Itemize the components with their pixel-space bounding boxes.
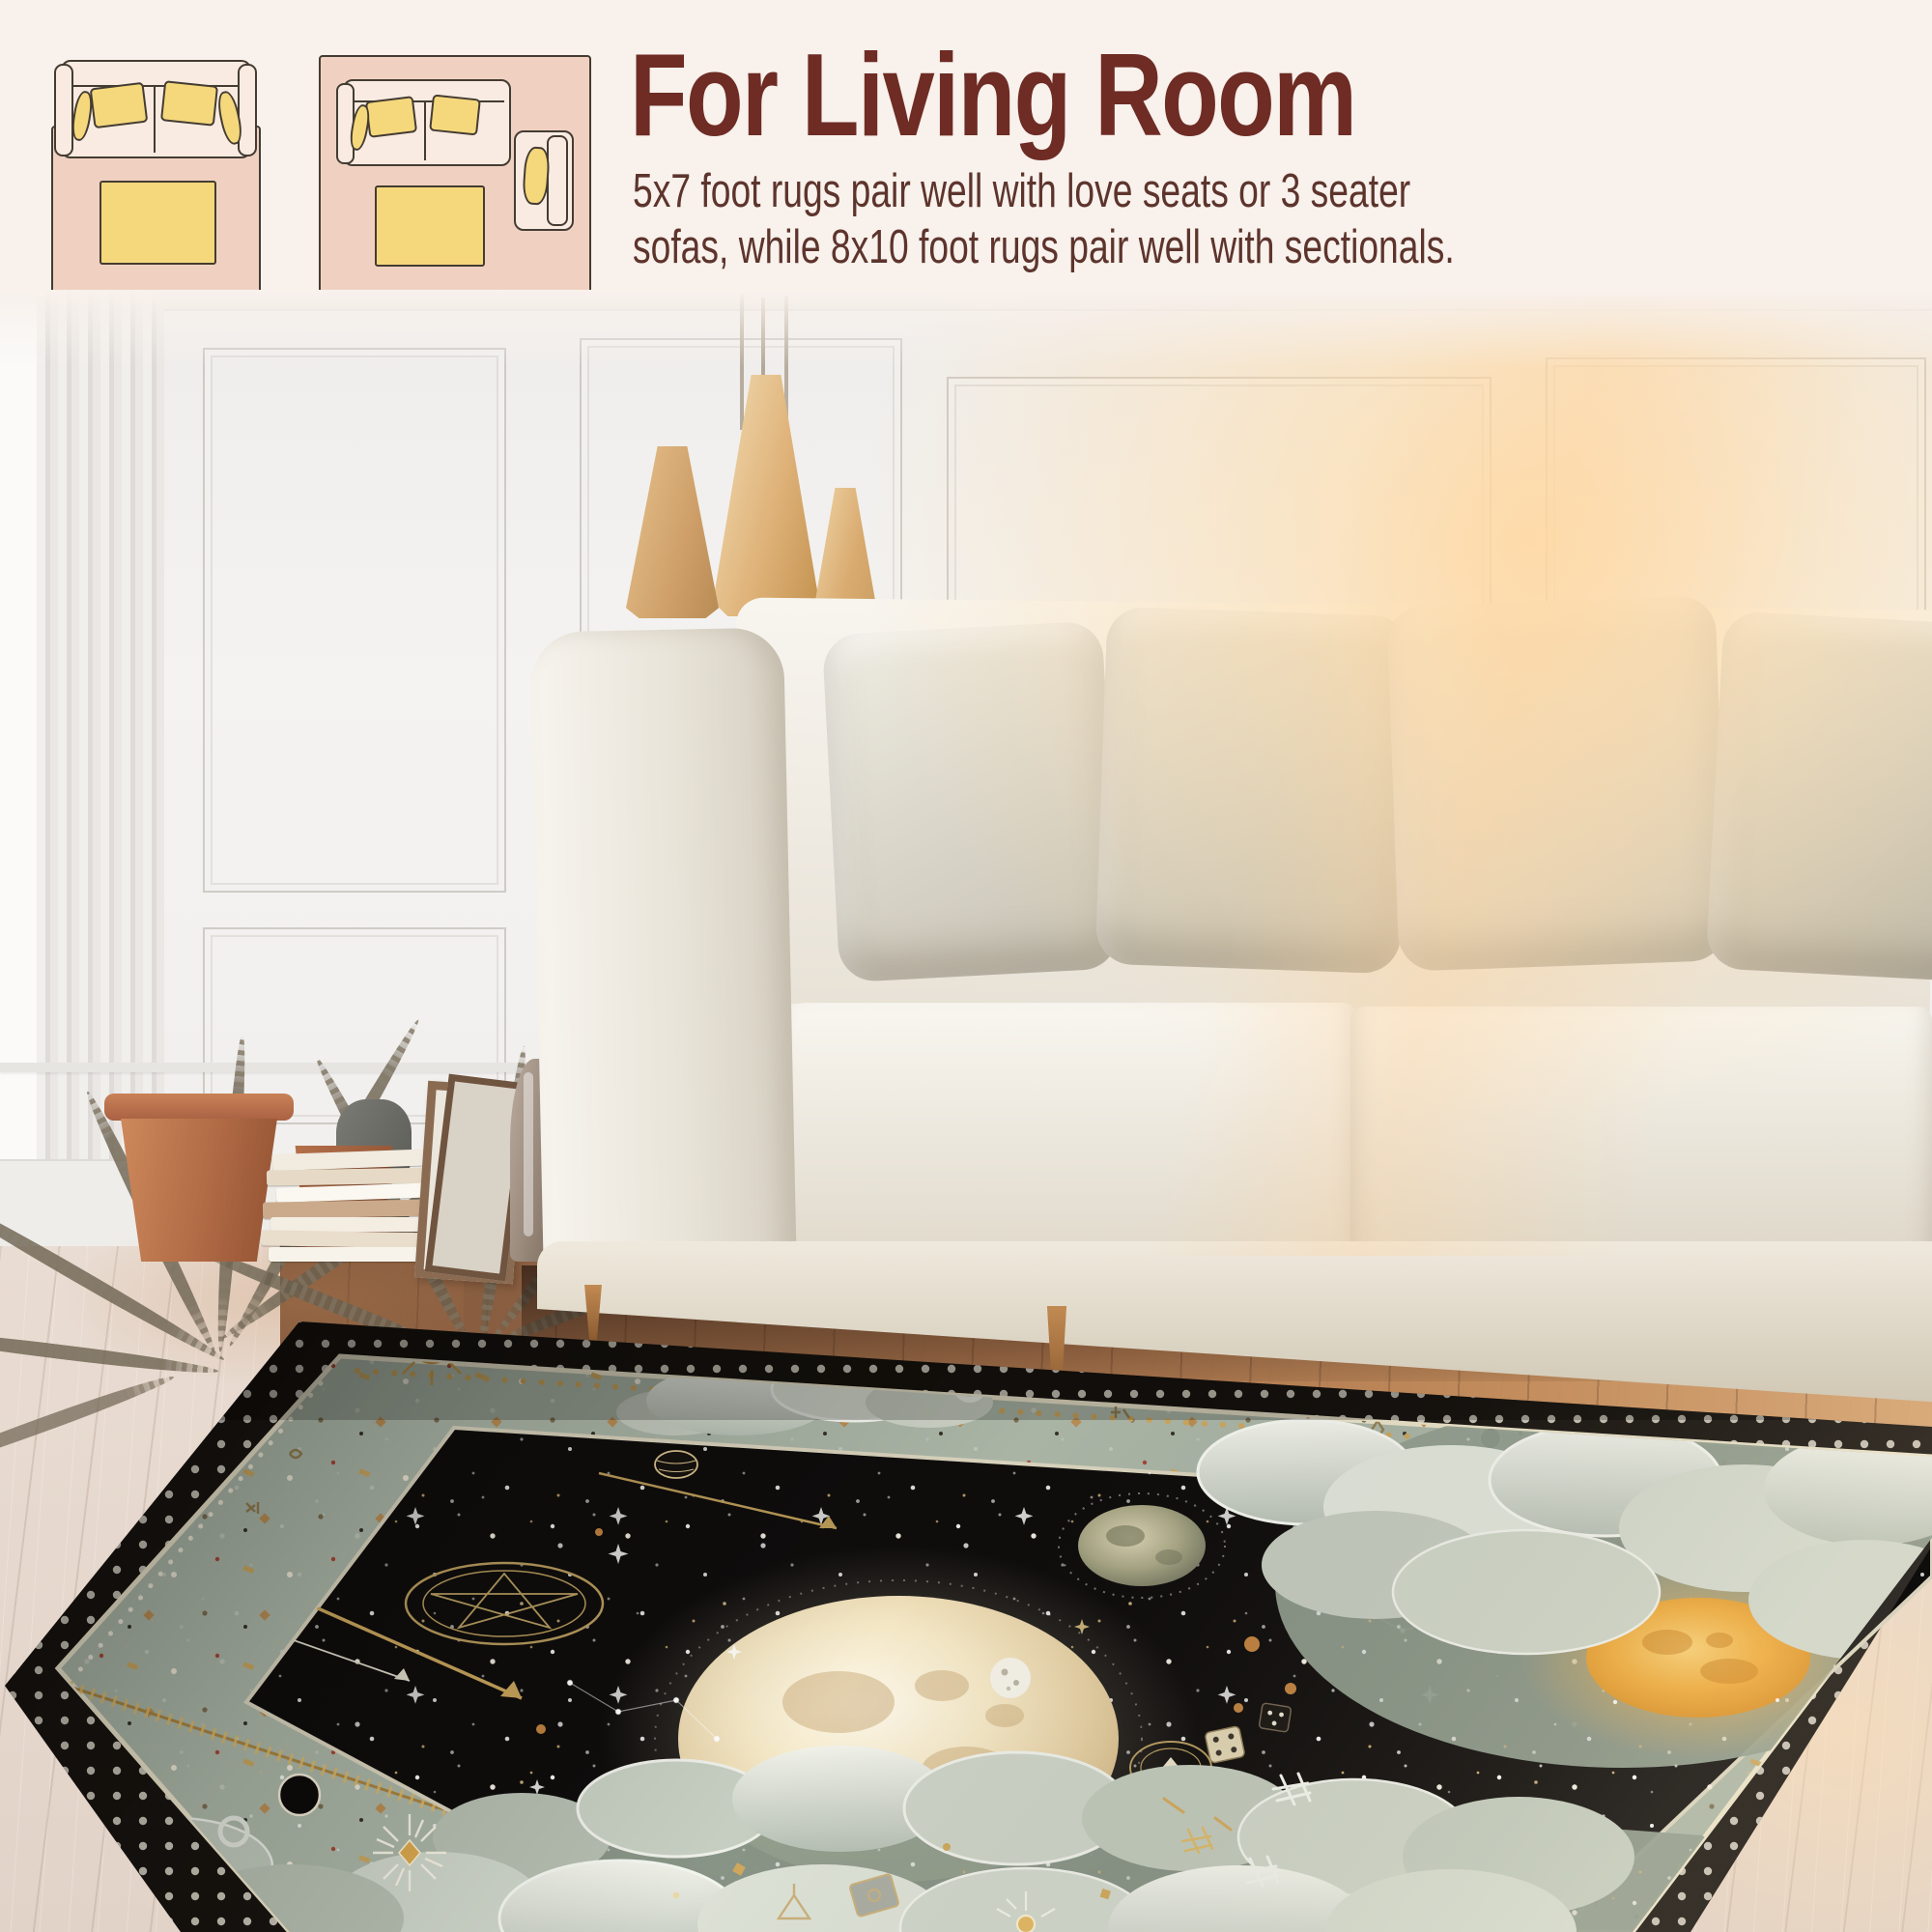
celestial-rug: ! bbox=[0, 0, 1932, 1932]
product-image: For Living Room 5x7 foot rugs pair well … bbox=[0, 0, 1932, 1932]
